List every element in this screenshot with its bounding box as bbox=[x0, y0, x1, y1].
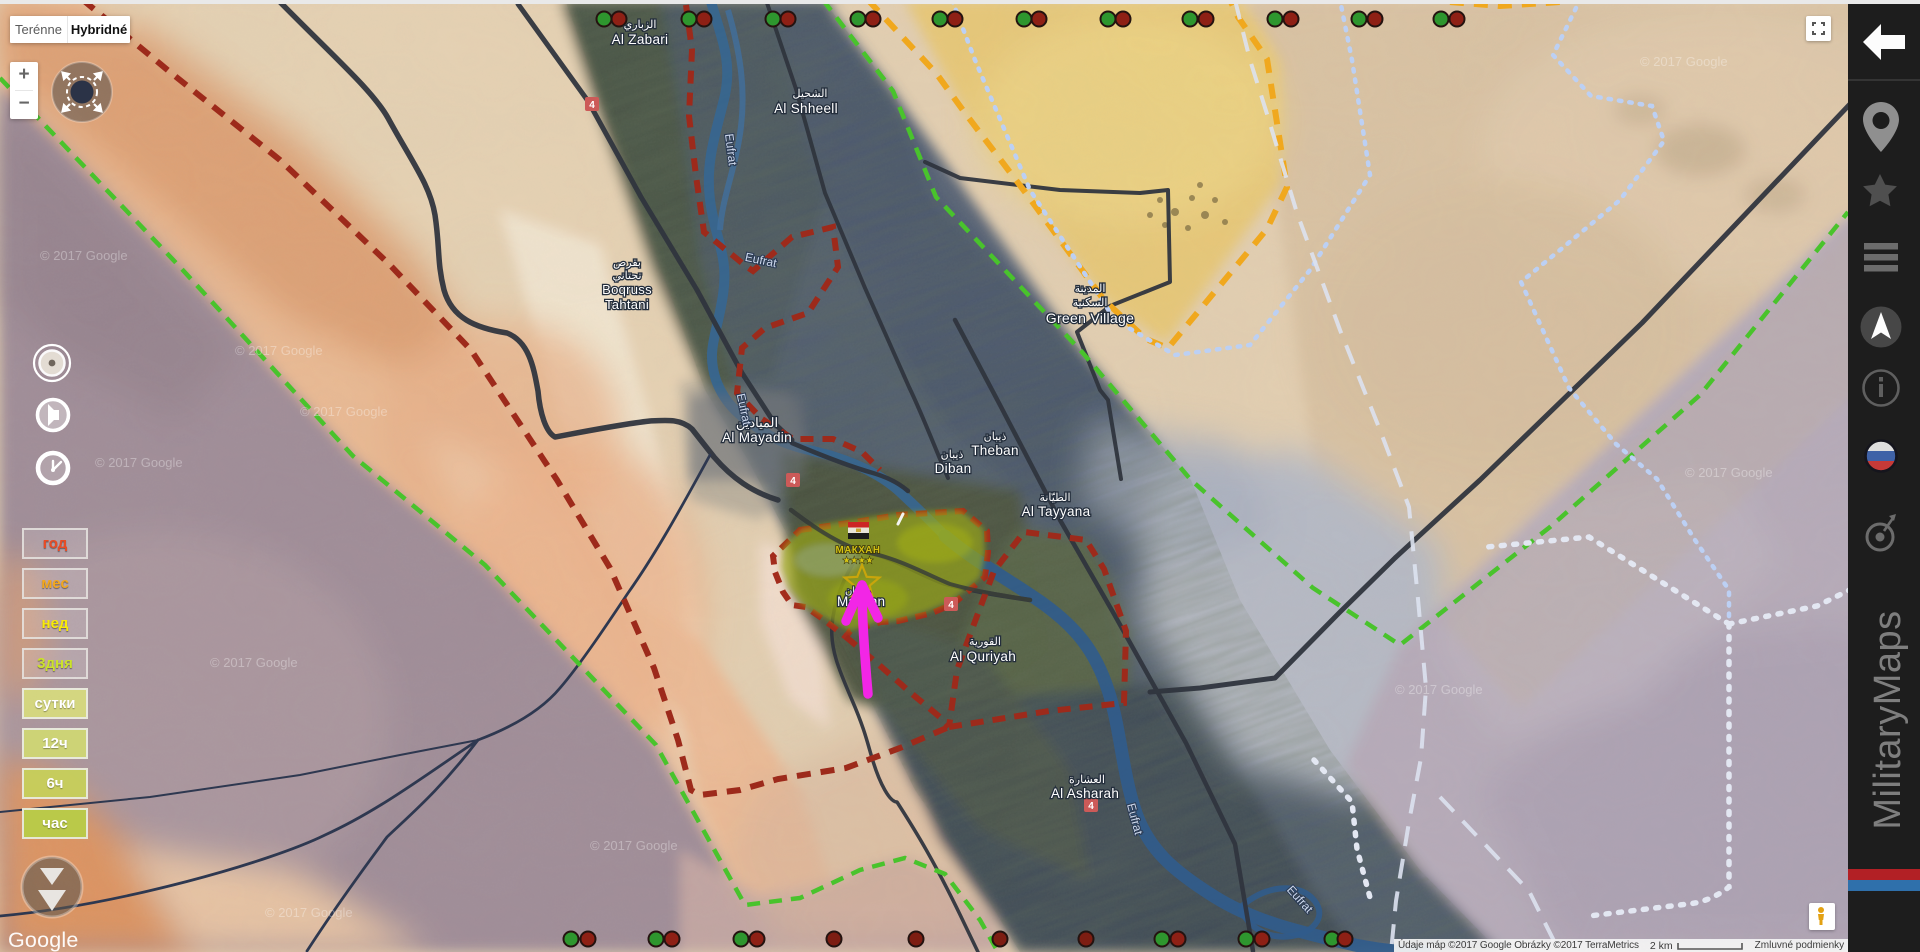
svg-text:4: 4 bbox=[1088, 801, 1094, 812]
svg-text:Al Asharah: Al Asharah bbox=[1051, 786, 1119, 801]
svg-text:© 2017 Google: © 2017 Google bbox=[1640, 54, 1728, 69]
svg-text:Green Village: Green Village bbox=[1046, 310, 1134, 326]
svg-text:4: 4 bbox=[589, 100, 595, 111]
svg-text:Theban: Theban bbox=[971, 443, 1019, 458]
svg-text:Tahtani: Tahtani bbox=[605, 297, 649, 312]
svg-text:تحتاني: تحتاني bbox=[612, 270, 641, 282]
svg-text:© 2017 Google: © 2017 Google bbox=[265, 905, 353, 920]
svg-text:ذيبان: ذيبان bbox=[941, 449, 964, 461]
svg-text:© 2017 Google: © 2017 Google bbox=[40, 248, 128, 263]
svg-text:Al Quriyah: Al Quriyah bbox=[950, 649, 1016, 664]
svg-text:الطيّانة: الطيّانة bbox=[1039, 492, 1070, 504]
svg-text:بقرص: بقرص bbox=[613, 257, 641, 269]
svg-text:© 2017 Google: © 2017 Google bbox=[590, 838, 678, 853]
svg-text:© 2017 Google: © 2017 Google bbox=[235, 343, 323, 358]
svg-text:© 2017 Google: © 2017 Google bbox=[210, 655, 298, 670]
svg-text:© 2017 Google: © 2017 Google bbox=[1685, 465, 1773, 480]
svg-text:★★★★: ★★★★ bbox=[843, 555, 874, 565]
svg-text:الشحيل: الشحيل bbox=[793, 88, 828, 100]
svg-text:MilitaryMaps: MilitaryMaps bbox=[1867, 610, 1909, 829]
svg-text:Google: Google bbox=[8, 928, 79, 952]
svg-text:القورية: القورية bbox=[969, 636, 1001, 648]
svg-text:Al Mayadin: Al Mayadin bbox=[722, 430, 792, 445]
svg-text:Diban: Diban bbox=[935, 461, 972, 476]
svg-text:© 2017 Google: © 2017 Google bbox=[1395, 682, 1483, 697]
svg-text:العشارة: العشارة bbox=[1069, 774, 1105, 786]
svg-text:4: 4 bbox=[948, 600, 954, 611]
svg-text:ذيبان: ذيبان bbox=[984, 431, 1007, 443]
svg-text:© 2017 Google: © 2017 Google bbox=[300, 404, 388, 419]
svg-text:السكنية: السكنية bbox=[1073, 297, 1108, 309]
svg-text:© 2017 Google: © 2017 Google bbox=[95, 455, 183, 470]
svg-text:4: 4 bbox=[790, 476, 796, 487]
svg-text:Al Zabari: Al Zabari bbox=[612, 32, 669, 47]
svg-text:Al Shheell: Al Shheell bbox=[774, 101, 838, 116]
svg-text:الزباري: الزباري bbox=[624, 19, 657, 31]
svg-text:المدينة: المدينة bbox=[1075, 283, 1106, 295]
svg-text:Al Tayyana: Al Tayyana bbox=[1022, 504, 1091, 519]
svg-text:Boqruss: Boqruss bbox=[602, 282, 652, 297]
